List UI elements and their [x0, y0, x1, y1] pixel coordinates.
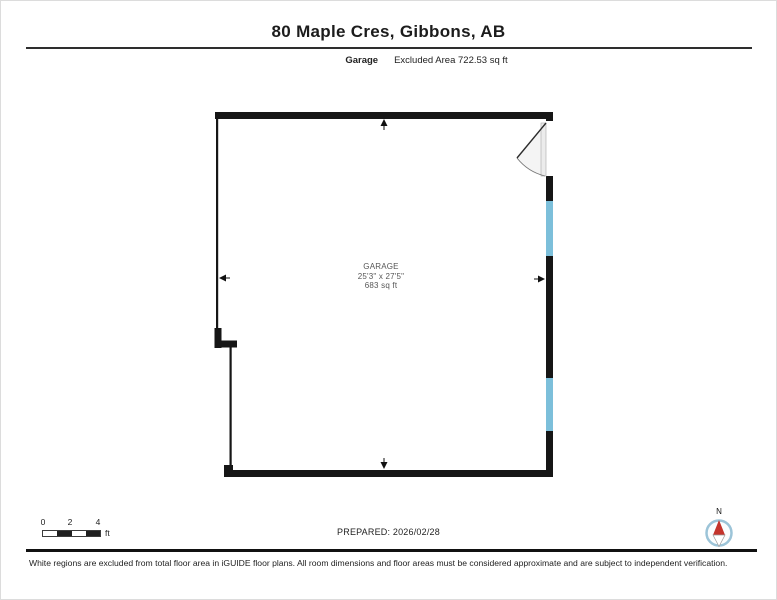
- room-name: GARAGE: [301, 262, 461, 272]
- wall-right-seg3: [546, 256, 553, 378]
- wall-left-lower: [230, 347, 232, 470]
- arrow-right-icon: [538, 276, 545, 283]
- prepared-date: PREPARED: 2026/02/28: [1, 527, 776, 537]
- scale-tick-2: 2: [64, 517, 76, 527]
- wall-right-seg1: [546, 112, 553, 121]
- floor-plan-page: 80 Maple Cres, Gibbons, AB GarageExclude…: [0, 0, 777, 600]
- door: [517, 123, 546, 176]
- wall-bottom: [224, 470, 553, 477]
- window-right-lower: [546, 378, 553, 431]
- arrow-left-icon: [219, 275, 226, 282]
- room-dimensions: 25'3" x 27'5": [301, 272, 461, 282]
- compass-north-label: N: [716, 507, 722, 516]
- arrow-down-icon: [381, 462, 388, 469]
- scale-tick-4: 4: [92, 517, 104, 527]
- dimension-arrows: [219, 119, 545, 469]
- door-slab: [541, 123, 546, 176]
- scale-tick-0: 0: [37, 517, 49, 527]
- room-label: GARAGE 25'3" x 27'5" 683 sq ft: [301, 262, 461, 291]
- arrow-up-icon: [381, 119, 388, 126]
- window-right-upper: [546, 201, 553, 256]
- floor-plan-drawing: N: [1, 1, 777, 600]
- wall-jog-horizontal: [215, 341, 238, 348]
- wall-right-seg2: [546, 176, 553, 201]
- room-area: 683 sq ft: [301, 281, 461, 291]
- garage-walls: [215, 112, 554, 477]
- disclaimer-text: White regions are excluded from total fl…: [29, 558, 769, 568]
- footer-divider: [26, 549, 757, 552]
- wall-left-upper: [216, 119, 218, 333]
- wall-top: [215, 112, 553, 119]
